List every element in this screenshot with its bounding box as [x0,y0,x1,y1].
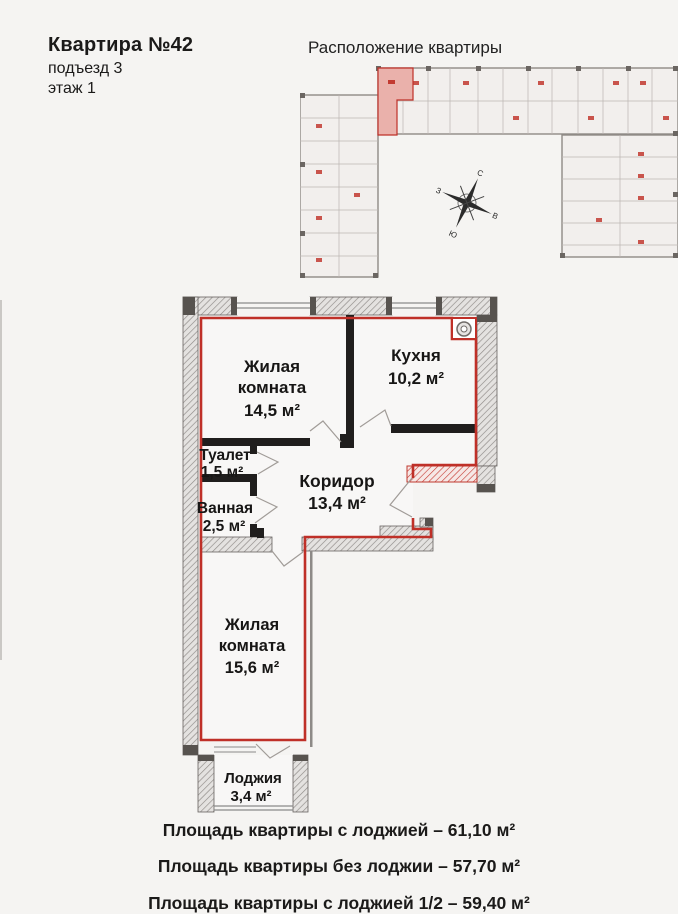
area-without-loggia: Площадь квартиры без лоджии – 57,70 м² [0,856,678,877]
floorplan-page: { "header": { "title": "Квартира №42", "… [0,0,678,900]
loggia-name: Лоджия [224,770,282,787]
corridor-name: Коридор [299,471,374,491]
kitchen-name: Кухня [391,346,441,365]
living1-name-line2: комната [238,378,307,397]
bathroom-name: Ванная [197,500,253,517]
highlighted-apartment-number [388,80,395,84]
floor-label: этаж 1 [48,80,96,98]
compass-east-label: В [491,211,500,221]
living2-name-line2: комната [219,637,286,655]
location-plan-title: Расположение квартиры [308,38,502,58]
area-with-half-loggia: Площадь квартиры с лоджией 1/2 – 59,40 м… [0,893,678,914]
vent-shaft-icon [452,318,476,339]
toilet-name: Туалет [199,447,251,464]
toilet-area: 1,5 м² [201,464,243,481]
entry-wall-band [407,466,477,482]
compass-west-label: З [434,186,442,196]
area-with-loggia: Площадь квартиры с лоджией – 61,10 м² [0,820,678,841]
kitchen-area: 10,2 м² [388,369,444,388]
floor-plan: Жилая комната 14,5 м² Кухня 10,2 м² Туал… [170,288,515,820]
living1-name-line1: Жилая [243,357,300,376]
bathroom-area: 2,5 м² [203,518,245,535]
neighbour-wall-line [310,551,313,747]
compass-north-label: С [476,168,485,179]
corridor-area: 13,4 м² [308,493,366,513]
living1-area: 14,5 м² [244,401,300,420]
living2-name-line1: Жилая [224,616,279,634]
compass-south-label: Ю [447,229,458,241]
living2-area: 15,6 м² [225,659,280,677]
building-location-plan: С В Ю З [300,62,678,280]
entrance-label: подъезд 3 [48,60,122,78]
scan-edge-line [0,300,2,660]
page-title: Квартира №42 [48,34,193,57]
compass-icon: С В Ю З [421,156,513,253]
loggia-area: 3,4 м² [230,788,271,805]
